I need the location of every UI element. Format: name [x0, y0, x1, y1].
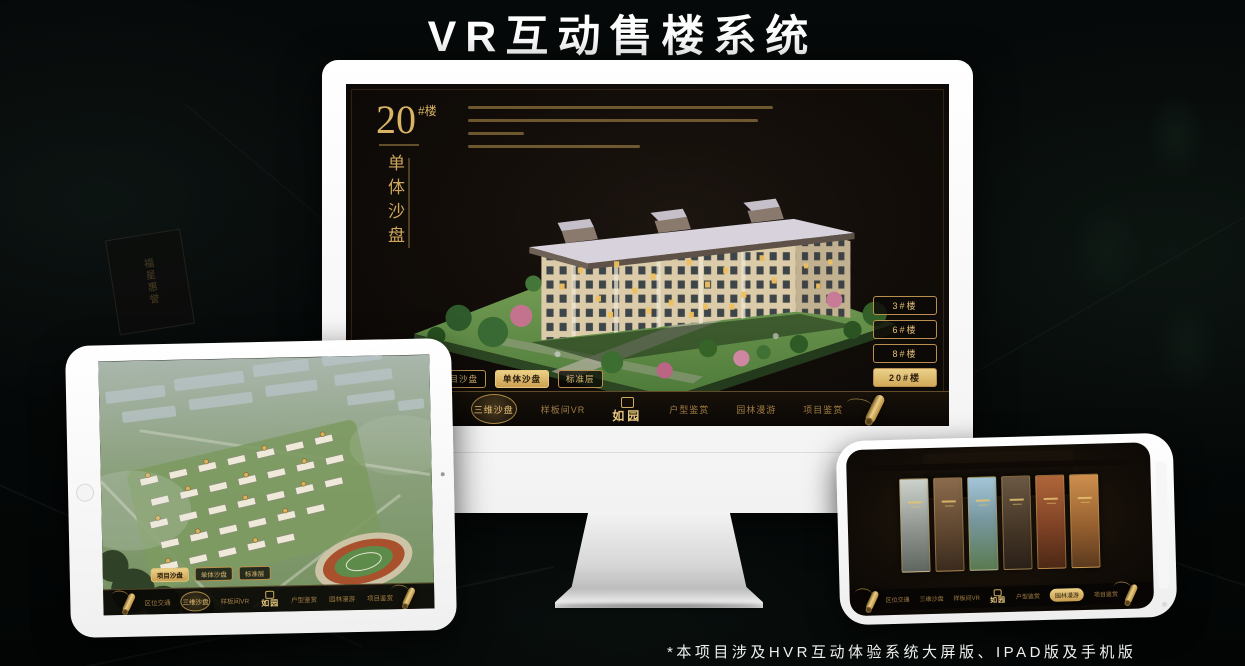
- building-3d-render[interactable]: [400, 164, 905, 399]
- bg-plaque: 福星惠誉: [105, 229, 195, 336]
- phone-bottom-navbar: 区位交通 三维沙盘 样板间VR 如园 户型鉴赏 园林漫游 项目鉴赏: [850, 582, 1154, 611]
- nav-item-floorplans[interactable]: 户型鉴赏: [291, 593, 317, 604]
- tab-single-sandbox[interactable]: 单体沙盘: [495, 370, 549, 388]
- nav-item-garden-tour[interactable]: 园林漫游: [1050, 588, 1084, 602]
- nav-item-3d-sandbox[interactable]: 三维沙盘: [182, 596, 208, 607]
- tab-standard-floor[interactable]: 标准层: [558, 370, 603, 388]
- tablet-view-tabs: 项目沙盘 单体沙盘 标准层: [151, 566, 271, 582]
- tablet-bottom-navbar: 区位交通 三维沙盘 样板间VR 如园 户型鉴赏 园林漫游 项目鉴赏: [103, 582, 434, 615]
- scene-card[interactable]: [899, 478, 930, 573]
- building-button[interactable]: 6#楼: [873, 320, 937, 339]
- description-paragraph: [468, 106, 773, 158]
- nav-item-showroom-vr[interactable]: 样板间VR: [541, 403, 586, 416]
- camera-icon: [1162, 602, 1167, 607]
- building-button-selected[interactable]: 20#楼: [873, 368, 937, 387]
- nav-item-showroom-vr[interactable]: 样板间VR: [220, 595, 249, 606]
- poster-root: 福星惠誉 VR互动售楼系统 20#楼 单体沙盘: [0, 0, 1245, 666]
- nav-item-3d-sandbox[interactable]: 三维沙盘: [474, 403, 514, 416]
- tab-single-sandbox[interactable]: 单体沙盘: [195, 567, 233, 582]
- heading-rule: [379, 144, 419, 146]
- block-unit: #楼: [418, 104, 437, 118]
- brand-seal-icon: [621, 397, 634, 408]
- brand-logo-text: 如园: [261, 600, 279, 608]
- brand-seal-icon: [265, 591, 274, 599]
- bg-plaque-text: 福星惠誉: [139, 257, 161, 307]
- monitor-stand-shadow: [555, 604, 763, 608]
- scene-card[interactable]: [1035, 474, 1066, 569]
- brand-logo: 如园: [261, 591, 279, 608]
- scene-card[interactable]: [1069, 474, 1100, 569]
- footnote: *本项目涉及HVR互动体验系统大屏版、IPAD版及手机版: [667, 641, 1136, 662]
- camera-icon: [441, 472, 445, 476]
- tab-project-sandbox[interactable]: 项目沙盘: [151, 568, 189, 583]
- description-line: [468, 119, 758, 122]
- brand-logo: 如园: [990, 589, 1006, 604]
- block-number: 20: [376, 97, 416, 142]
- scroll-icon[interactable]: [401, 586, 416, 607]
- page-title: VR互动售楼系统: [0, 2, 1245, 64]
- nav-item-floorplans[interactable]: 户型鉴赏: [669, 403, 709, 416]
- scroll-icon[interactable]: [122, 592, 137, 613]
- view-tabs: 项目沙盘 单体沙盘 标准层: [432, 370, 603, 388]
- tablet-screen: 项目沙盘 单体沙盘 标准层 区位交通 三维沙盘 样板间VR 如园 户型鉴赏 园林…: [98, 354, 434, 615]
- phone-screen: 区位交通 三维沙盘 样板间VR 如园 户型鉴赏 园林漫游 项目鉴赏: [846, 442, 1154, 616]
- brand-logo-text: 如园: [990, 597, 1006, 604]
- nav-item-garden-tour[interactable]: 园林漫游: [736, 403, 776, 416]
- monitor-stand: [555, 512, 763, 608]
- nav-item-location[interactable]: 区位交通: [144, 596, 170, 607]
- home-button[interactable]: [76, 483, 94, 501]
- building-selector: 3#楼 6#楼 8#楼 20#楼: [873, 296, 937, 392]
- tablet-device: 项目沙盘 单体沙盘 标准层 区位交通 三维沙盘 样板间VR 如园 户型鉴赏 园林…: [65, 338, 457, 638]
- nav-item-project[interactable]: 项目鉴赏: [367, 592, 393, 603]
- building-button[interactable]: 3#楼: [873, 296, 937, 315]
- scroll-icon[interactable]: [864, 393, 886, 424]
- scene-card[interactable]: [1001, 475, 1032, 570]
- nav-item-location[interactable]: 区位交通: [885, 595, 909, 605]
- nav-item-project[interactable]: 项目鉴赏: [803, 403, 843, 416]
- nav-item-floorplans[interactable]: 户型鉴赏: [1016, 591, 1040, 601]
- nav-item-3d-sandbox[interactable]: 三维沙盘: [919, 594, 943, 604]
- nav-item-showroom-vr[interactable]: 样板间VR: [953, 593, 980, 603]
- description-line: [468, 106, 773, 109]
- phone-device: 区位交通 三维沙盘 样板间VR 如园 户型鉴赏 园林漫游 项目鉴赏: [836, 433, 1178, 626]
- description-line: [468, 132, 524, 135]
- scene-card[interactable]: [967, 476, 998, 571]
- brand-logo: 如园: [612, 397, 642, 422]
- scene-card-gallery: [899, 474, 1100, 573]
- building-button[interactable]: 8#楼: [873, 344, 937, 363]
- scroll-icon[interactable]: [1124, 583, 1139, 604]
- bg-foliage: [1015, 60, 1245, 440]
- scene-card[interactable]: [933, 477, 964, 572]
- block-heading: 20#楼: [376, 100, 437, 140]
- scroll-icon[interactable]: [865, 589, 880, 610]
- nav-item-garden-tour[interactable]: 园林漫游: [329, 593, 355, 604]
- tab-standard-floor[interactable]: 标准层: [239, 566, 271, 581]
- phone-side-bezel: [1155, 460, 1169, 589]
- description-line: [468, 145, 640, 148]
- brand-logo-text: 如园: [612, 410, 642, 422]
